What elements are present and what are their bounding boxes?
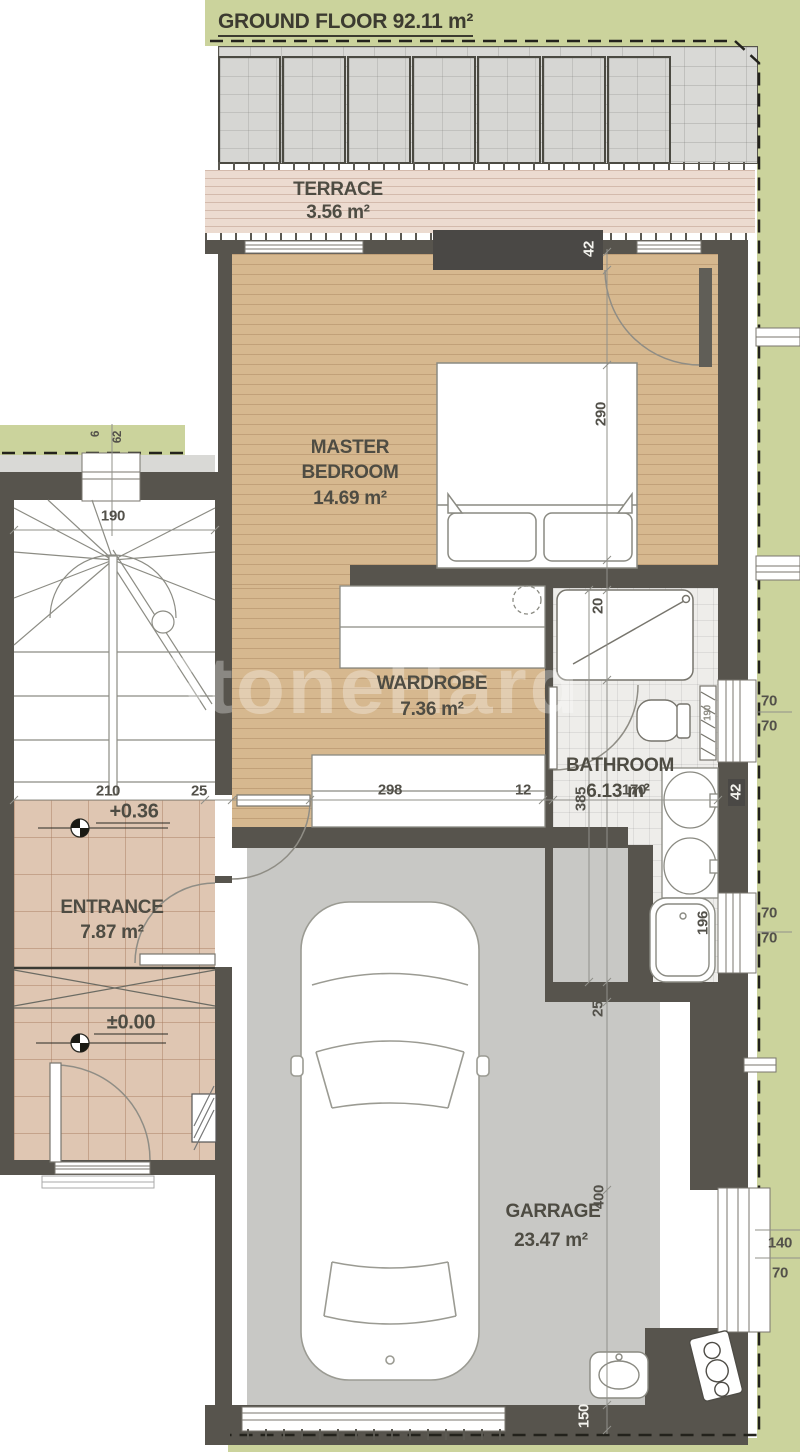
dim-tub-length: 196 (695, 911, 712, 935)
room-label-master-2: BEDROOM (301, 462, 398, 484)
page-title: GROUND FLOOR 92.11 m² (218, 10, 473, 37)
room-label-wardrobe: WARDROBE (377, 673, 488, 695)
dim-closet-gap: 12 (515, 782, 531, 799)
room-area-terrace: 3.56 m² (306, 202, 369, 224)
dim-entrance-wall: 25 (191, 783, 207, 800)
dim-garage-door: 150 (576, 1404, 593, 1428)
room-label-bathroom: BATHROOM (566, 755, 674, 777)
dim-bathroom-depth: 385 (573, 787, 590, 811)
room-area-wardrobe: 7.36 m² (400, 699, 463, 721)
car (291, 902, 489, 1380)
room-area-master: 14.69 m² (313, 488, 387, 510)
level-value-upper: +0.36 (109, 801, 158, 824)
watermark: StoneHard (150, 640, 582, 732)
dim-bathroom-width: 170 (622, 782, 646, 799)
dim-terrace-door: 42 (581, 241, 598, 257)
dim-bedroom-depth: 290 (593, 402, 610, 426)
dim-garage-depth: 400 (591, 1185, 608, 1209)
dim-closet-run: 298 (378, 782, 402, 799)
room-label-entrance: ENTRANCE (60, 897, 163, 919)
level-value-ground: ±0.00 (107, 1012, 155, 1035)
room-area-entrance: 7.87 m² (80, 922, 143, 944)
garage-sink (590, 1352, 648, 1398)
room-label-garage: GARRAGE (505, 1201, 600, 1223)
dim-radiator: 190 (703, 705, 714, 721)
room-label-master-1: MASTER (311, 437, 389, 459)
room-label-terrace: TERRACE (293, 179, 383, 201)
dim-garage-window-b: 70 (772, 1265, 788, 1282)
toilet (637, 700, 690, 741)
entrance-steps (14, 968, 215, 1008)
dim-shower: 20 (590, 598, 607, 614)
room-area-garage: 23.47 m² (514, 1230, 588, 1252)
dim-garage-window-a: 140 (768, 1235, 792, 1252)
washbasins (662, 768, 718, 898)
dim-tub-window-a: 70 (761, 905, 777, 922)
dim-stairs-width: 190 (101, 508, 125, 525)
boiler-unit (689, 1330, 743, 1402)
dim-entrance-width: 210 (96, 783, 120, 800)
dim-tub-window-b: 70 (761, 930, 777, 947)
dim-fixture-door: 42 (728, 784, 745, 800)
floor-plan: StoneHard GROUND FLOOR 92.11 m² TERRACE … (0, 0, 800, 1452)
radiator (700, 686, 716, 760)
dim-left-window-a: 6 (90, 431, 102, 437)
dim-left-window-b: 62 (112, 431, 124, 443)
dim-bath-window-b: 70 (761, 718, 777, 735)
dim-garage-wall: 25 (590, 1001, 607, 1017)
dim-bath-window-a: 70 (761, 693, 777, 710)
